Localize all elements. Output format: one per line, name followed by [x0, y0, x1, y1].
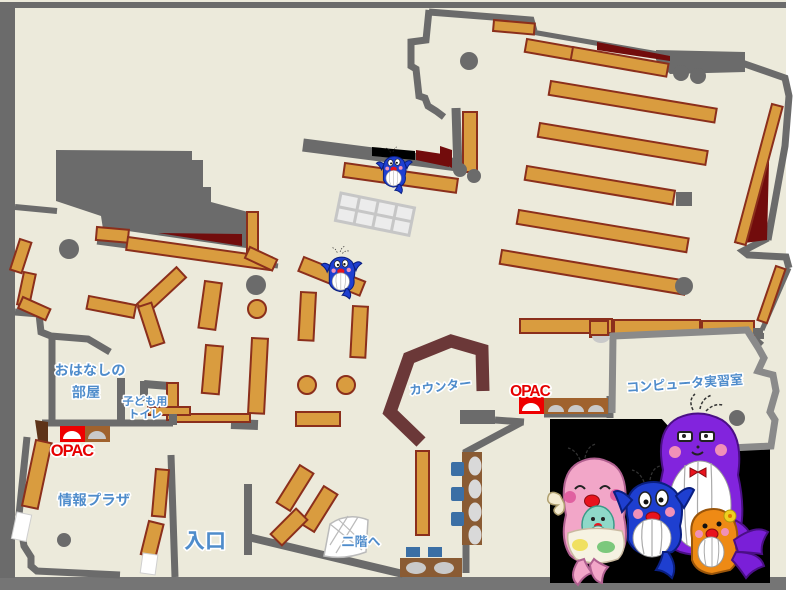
svg-text:OPAC: OPAC [51, 442, 95, 460]
svg-text:OPAC: OPAC [510, 383, 550, 400]
